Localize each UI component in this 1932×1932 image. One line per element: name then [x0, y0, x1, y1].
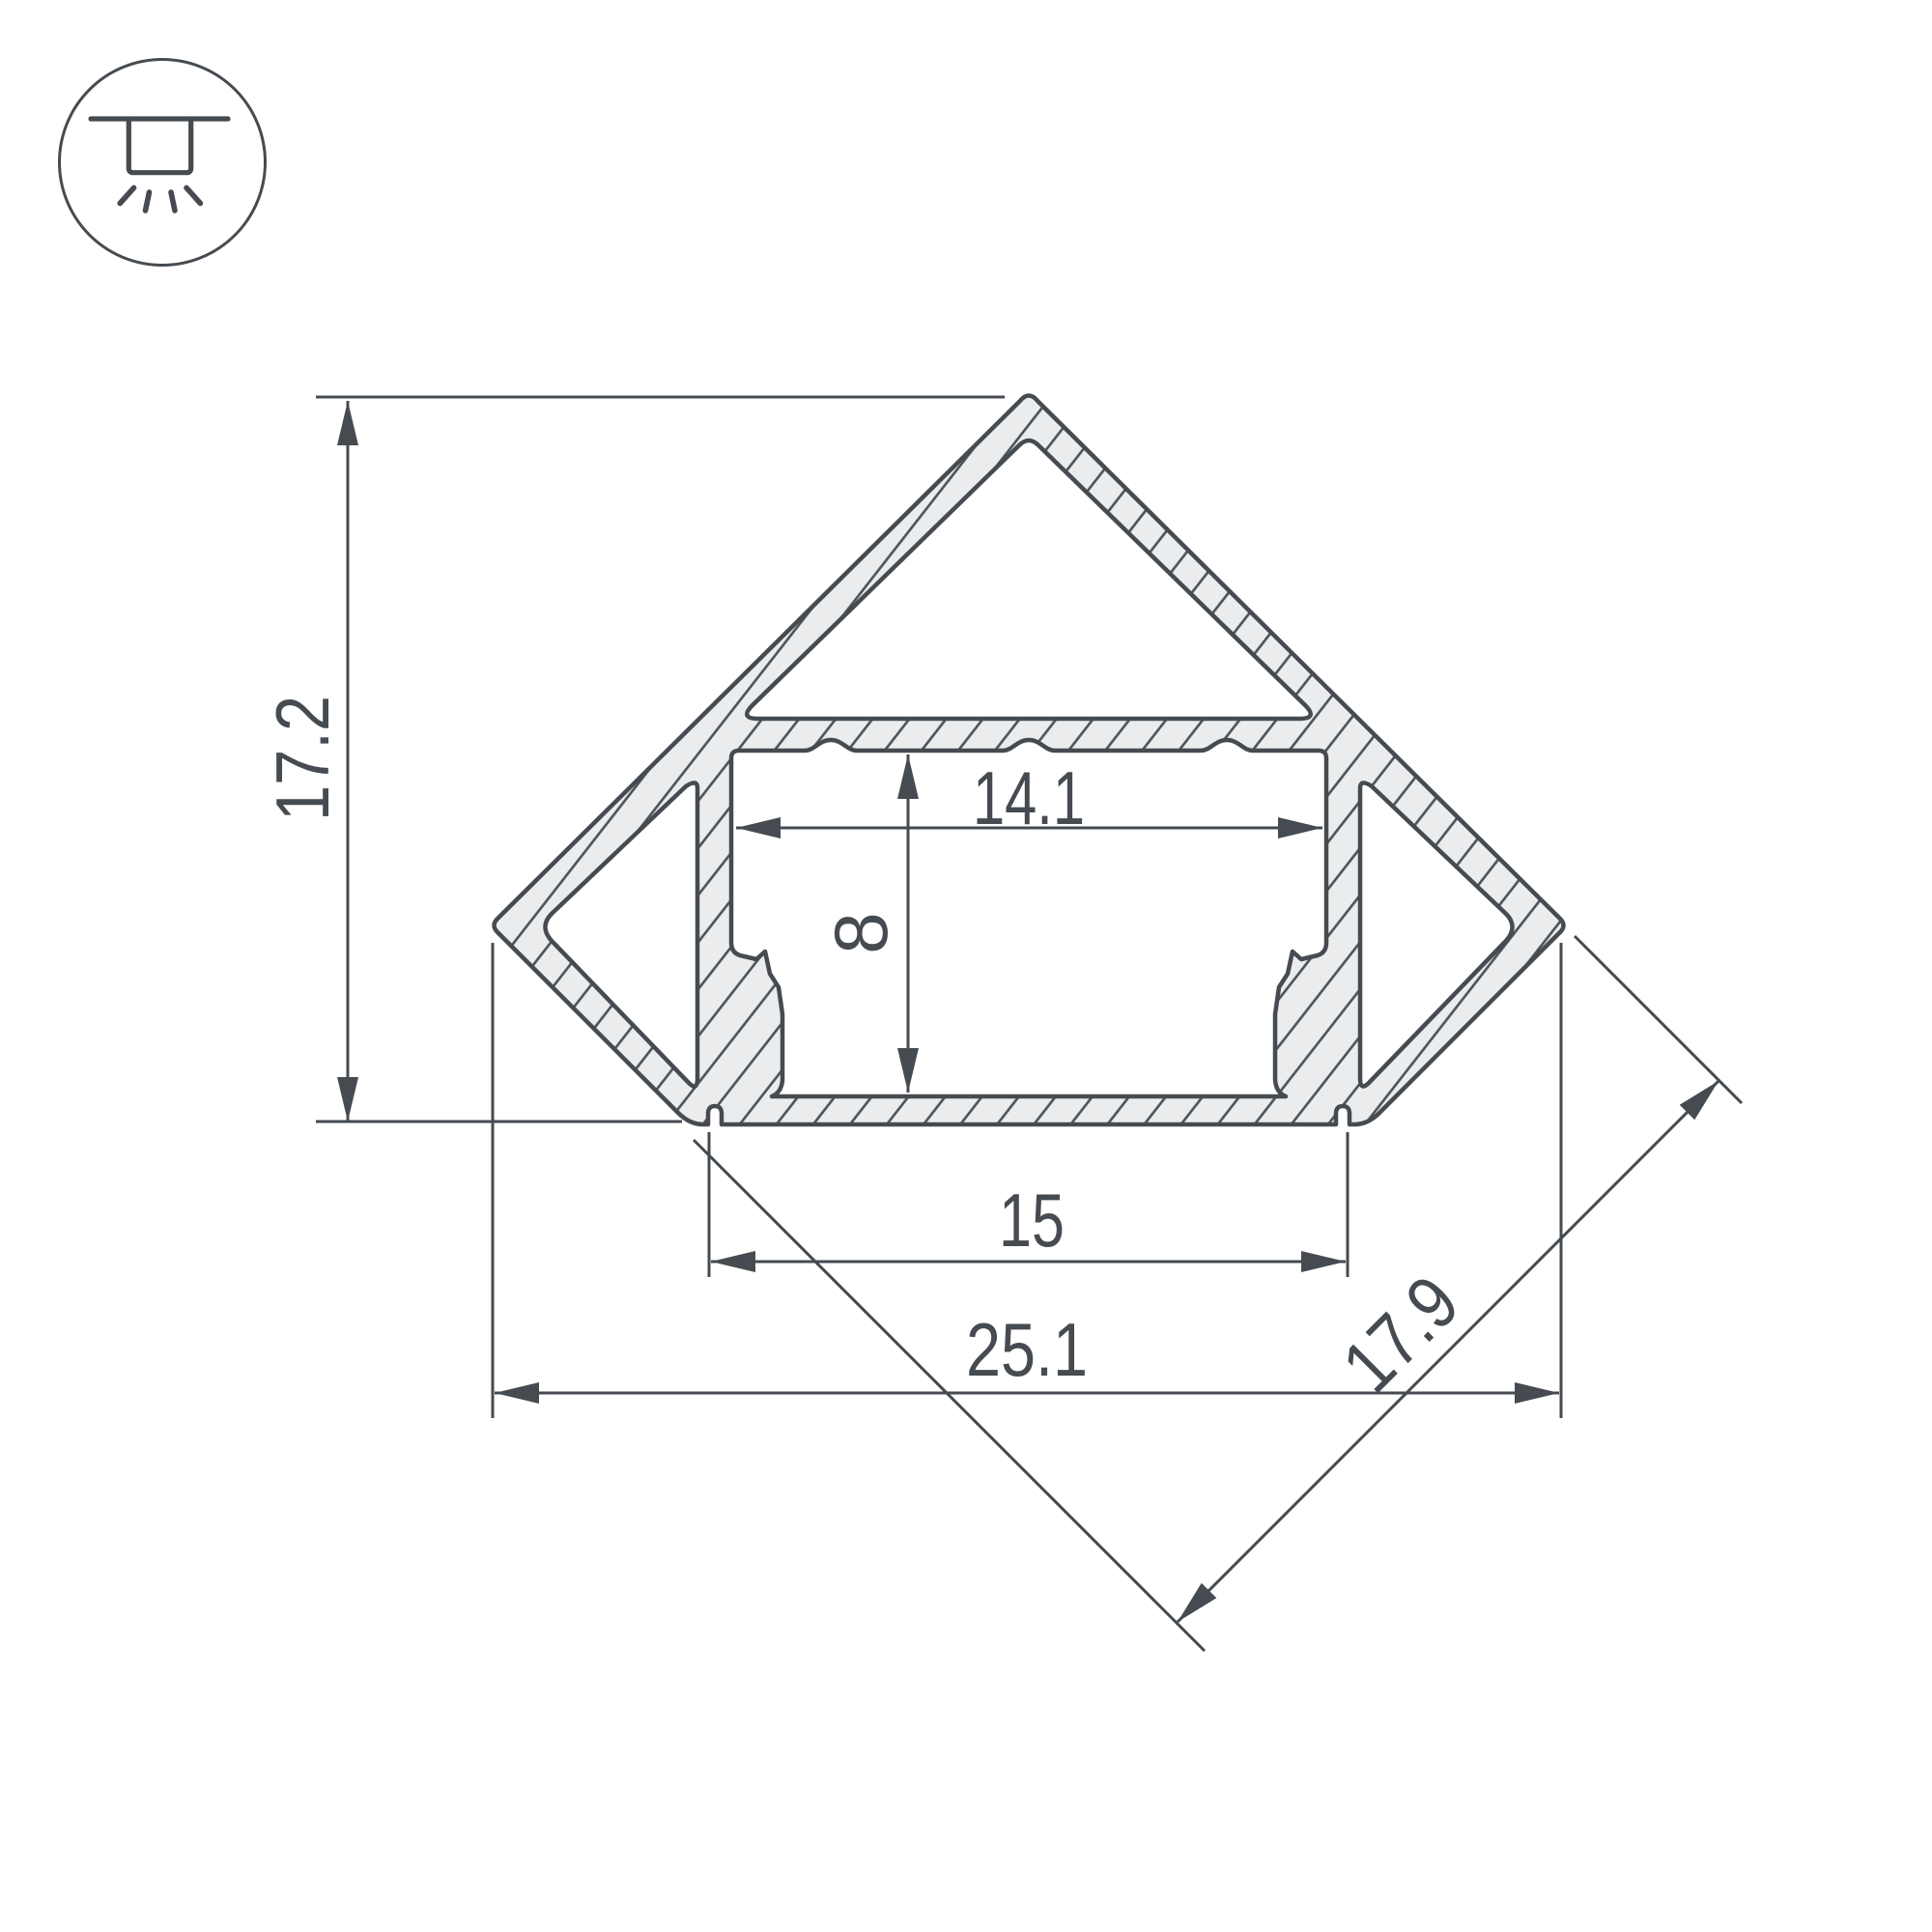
- svg-text:25.1: 25.1: [966, 1307, 1088, 1392]
- svg-text:8: 8: [818, 912, 903, 953]
- svg-text:15: 15: [999, 1178, 1065, 1263]
- svg-text:17.2: 17.2: [260, 696, 345, 821]
- svg-text:14.1: 14.1: [973, 755, 1085, 840]
